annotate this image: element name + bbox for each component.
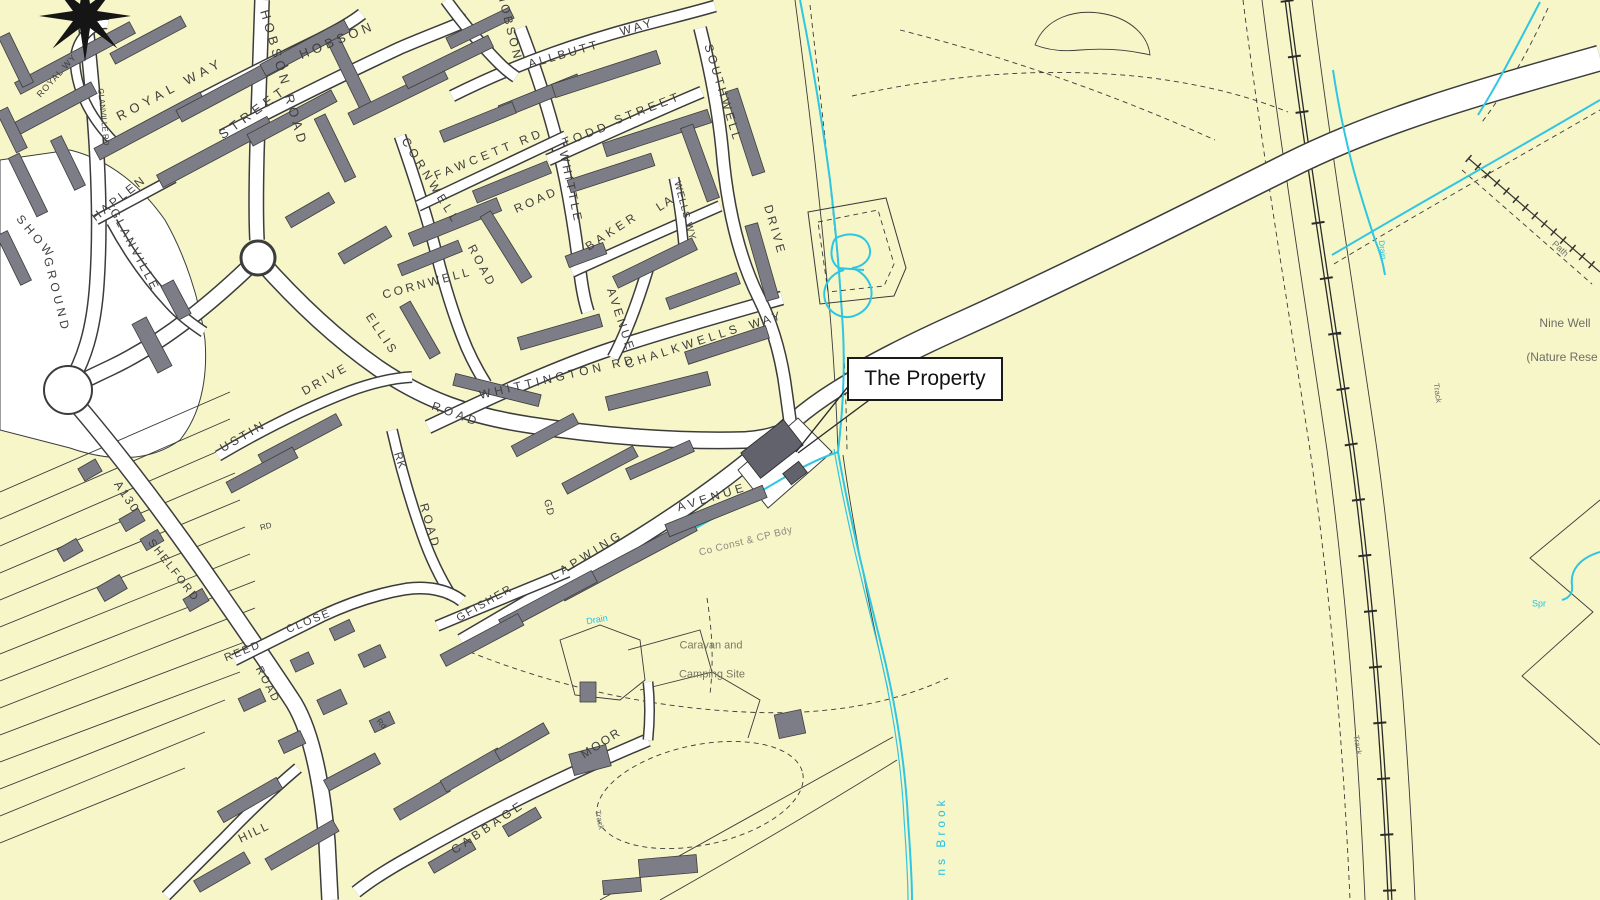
feature-label-track-ne: Track bbox=[1432, 383, 1443, 404]
property-callout: The Property bbox=[847, 357, 1003, 401]
roundabout bbox=[241, 241, 275, 275]
road-junction bbox=[44, 366, 92, 414]
feature-label-caravan-line1: Caravan and bbox=[680, 641, 743, 652]
feature-label-nine-well: Nine Well bbox=[1539, 317, 1590, 329]
water-label-drain-ne: Drain bbox=[1377, 240, 1388, 260]
water-label-spr: Spr bbox=[1532, 600, 1546, 609]
map-canvas[interactable]: ROYAL WY GLANVILLE RD ROYAL WAY STREET H… bbox=[0, 0, 1600, 900]
feature-label-caravan-line2: Camping Site bbox=[679, 670, 745, 681]
feature-label-nature-reserve: (Nature Rese bbox=[1526, 351, 1597, 363]
water-label-brook: ns Brook bbox=[935, 796, 947, 875]
map-drawing bbox=[0, 0, 1600, 900]
